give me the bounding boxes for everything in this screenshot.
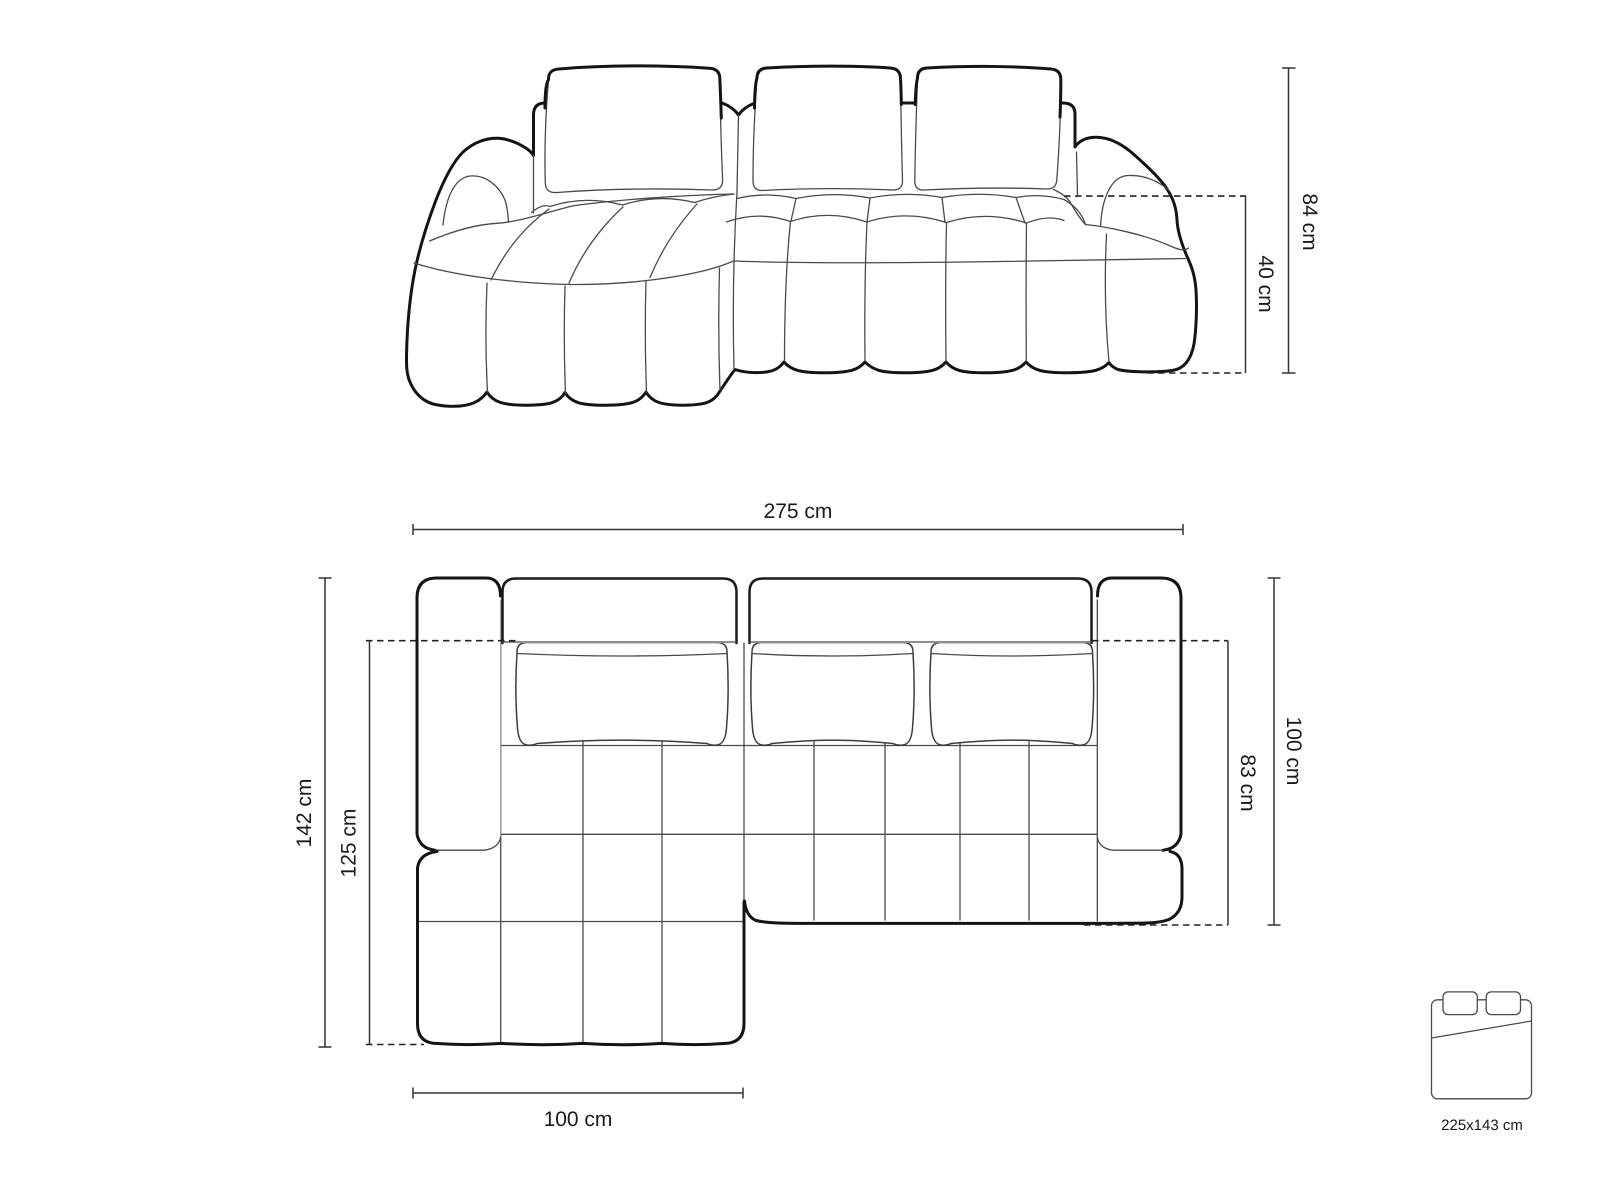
svg-text:275 cm: 275 cm xyxy=(764,500,833,523)
svg-text:40 cm: 40 cm xyxy=(1254,255,1277,312)
svg-text:125 cm: 125 cm xyxy=(338,809,361,878)
svg-text:100 cm: 100 cm xyxy=(544,1108,613,1131)
svg-text:142 cm: 142 cm xyxy=(293,779,316,848)
svg-text:84 cm: 84 cm xyxy=(1298,193,1321,250)
svg-text:83 cm: 83 cm xyxy=(1236,754,1259,811)
svg-text:225x143 cm: 225x143 cm xyxy=(1441,1117,1523,1134)
svg-text:100 cm: 100 cm xyxy=(1282,717,1305,786)
